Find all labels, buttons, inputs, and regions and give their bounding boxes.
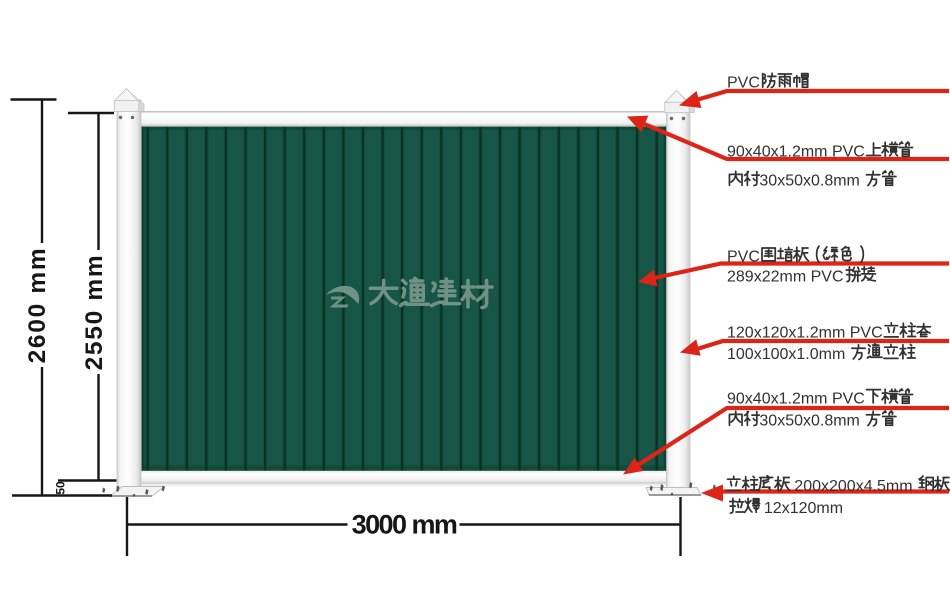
svg-text:2600 mm: 2600 mm xyxy=(24,247,51,364)
svg-text:3000 mm: 3000 mm xyxy=(352,510,457,540)
svg-text:PVC: PVC xyxy=(727,75,760,92)
svg-text:120x120x1.2mm PVC: 120x120x1.2mm PVC xyxy=(727,325,883,342)
svg-text:2550 mm: 2550 mm xyxy=(81,254,108,371)
svg-text:289x22mm PVC: 289x22mm PVC xyxy=(727,269,844,286)
svg-text:100x100x1.0mm: 100x100x1.0mm xyxy=(727,346,845,363)
svg-text:12x120mm: 12x120mm xyxy=(764,500,843,517)
svg-text:50: 50 xyxy=(54,481,68,495)
svg-text:30x50x0.8mm: 30x50x0.8mm xyxy=(759,173,860,190)
svg-text:200x200x4.5mm: 200x200x4.5mm xyxy=(794,478,912,495)
svg-text:30x50x0.8mm: 30x50x0.8mm xyxy=(759,413,860,430)
svg-text:90x40x1.2mm PVC: 90x40x1.2mm PVC xyxy=(727,144,865,161)
svg-text:PVC: PVC xyxy=(727,249,760,266)
svg-text:90x40x1.2mm PVC: 90x40x1.2mm PVC xyxy=(727,391,865,408)
